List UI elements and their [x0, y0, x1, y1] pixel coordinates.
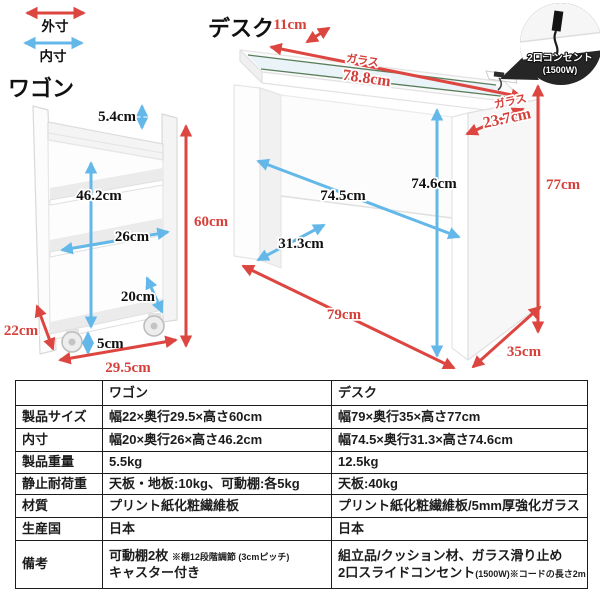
- desk-top-strip-dim: 11cm: [273, 17, 307, 33]
- wagon-remarks-note: ※棚12段階調節 (3cmピッチ): [172, 552, 290, 562]
- row-label: 製品サイズ: [16, 406, 103, 429]
- wagon-outer-depth-dim: 29.5cm: [105, 360, 151, 376]
- row-label: 製品重量: [16, 452, 103, 474]
- desk-outer-width-dim: 79cm: [327, 307, 362, 323]
- wagon-inner-height-dim: 46.2cm: [76, 188, 122, 204]
- wagon-material-value: プリント紙化粧繊維板: [103, 495, 332, 518]
- wagon-top-panel-dim: 5.4cm: [98, 109, 136, 125]
- desk-remarks-line1: 組立品/クッション材、ガラス滑り止め: [338, 548, 562, 563]
- desk-country-value: 日本: [332, 518, 588, 541]
- table-row-remarks: 備考 可動棚2枚 ※棚12段階調節 (3cmピッチ) キャスター付き 組立品/ク…: [16, 541, 588, 589]
- desk-remarks-value: 組立品/クッション材、ガラス滑り止め 2口スライドコンセント(1500W)※コー…: [332, 541, 588, 589]
- product-spec-image: 外寸 内寸 ワゴン: [0, 0, 600, 600]
- legend: 外寸 内寸: [25, 13, 84, 64]
- wagon-remarks-value: 可動棚2枚 ※棚12段階調節 (3cmピッチ) キャスター付き: [103, 541, 332, 589]
- table-header-row: ワゴン デスク: [16, 381, 588, 406]
- table-row-load: 静止耐荷重 天板・地板:10kg、可動棚:各5kg 天板:40kg: [16, 474, 588, 495]
- desk-top-strip-arrow: [307, 28, 329, 42]
- callout-line2: (1500W): [543, 65, 578, 75]
- desk-size-value: 幅79×奥行35×高さ77cm: [332, 406, 588, 429]
- row-label: 材質: [16, 495, 103, 518]
- col-header-wagon: ワゴン: [103, 381, 332, 406]
- wagon-title: ワゴン: [8, 76, 74, 101]
- spec-table: ワゴン デスク 製品サイズ 幅22×奥行29.5×高さ60cm 幅79×奥行35…: [15, 380, 588, 589]
- callout-line1: 2口コンセント: [527, 52, 593, 64]
- wagon-country-value: 日本: [103, 518, 332, 541]
- wagon-inner-depth-dim: 26cm: [115, 229, 150, 245]
- desk-outer-depth-dim: 35cm: [507, 344, 542, 360]
- desk-inner-value: 幅74.5×奥行31.3×高さ74.6cm: [332, 429, 588, 452]
- desk-remarks-note: (1500W)※コードの長さ2m: [475, 569, 586, 579]
- dimension-diagram: 外寸 内寸 ワゴン: [0, 0, 600, 380]
- callout-photo: [520, 3, 600, 60]
- wagon-weight-value: 5.5kg: [103, 452, 332, 474]
- desk-load-value: 天板:40kg: [332, 474, 588, 495]
- wagon-drawing: [33, 106, 177, 354]
- table-row-size: 製品サイズ 幅22×奥行29.5×高さ60cm 幅79×奥行35×高さ77cm: [16, 406, 588, 429]
- wagon-inner-value: 幅20×奥行26×高さ46.2cm: [103, 429, 332, 452]
- desk-remarks-line2: 2口スライドコンセント: [338, 565, 475, 580]
- desk-title: デスク: [208, 16, 274, 41]
- wagon-remarks-line2: キャスター付き: [109, 565, 200, 580]
- desk-drawing: [234, 50, 540, 360]
- table-row-weight: 製品重量 5.5kg 12.5kg: [16, 452, 588, 474]
- table-row-material: 材質 プリント紙化粧繊維板 プリント紙化粧繊維板/5mm厚強化ガラス: [16, 495, 588, 518]
- row-label: 備考: [16, 541, 103, 589]
- legend-inner-label: 内寸: [40, 48, 67, 64]
- desk-weight-value: 12.5kg: [332, 452, 588, 474]
- wagon-outer-height-dim: 60cm: [194, 214, 229, 230]
- desk-material-value: プリント紙化粧繊維板/5mm厚強化ガラス: [332, 495, 588, 518]
- corner-cell: [16, 381, 103, 406]
- wagon-remarks-line1: 可動棚2枚: [109, 548, 168, 563]
- desk-right-panel-side: [468, 99, 540, 360]
- row-label: 生産国: [16, 518, 103, 541]
- wagon-outer-width-dim: 22cm: [4, 323, 39, 339]
- row-label: 内寸: [16, 429, 103, 452]
- desk-outer-height-dim: 77cm: [546, 177, 581, 193]
- wagon-inner-width-dim: 20cm: [121, 289, 156, 305]
- wagon-right-panel: [162, 114, 177, 322]
- desk-inner-depth-dim: 31.3cm: [278, 236, 324, 252]
- col-header-desk: デスク: [332, 381, 588, 406]
- legend-outer-label: 外寸: [42, 18, 69, 34]
- table-row-inner: 内寸 幅20×奥行26×高さ46.2cm 幅74.5×奥行31.3×高さ74.6…: [16, 429, 588, 452]
- desk-inner-width-dim: 74.5cm: [320, 188, 366, 204]
- desk-inner-height-dim: 74.6cm: [411, 176, 457, 192]
- table-row-country: 生産国 日本 日本: [16, 518, 588, 541]
- row-label: 静止耐荷重: [16, 474, 103, 495]
- wagon-size-value: 幅22×奥行29.5×高さ60cm: [103, 406, 332, 429]
- desk-left-leg-front: [234, 85, 260, 260]
- outlet-callout: 2口コンセント (1500W): [500, 3, 600, 85]
- wagon-load-value: 天板・地板:10kg、可動棚:各5kg: [103, 474, 332, 495]
